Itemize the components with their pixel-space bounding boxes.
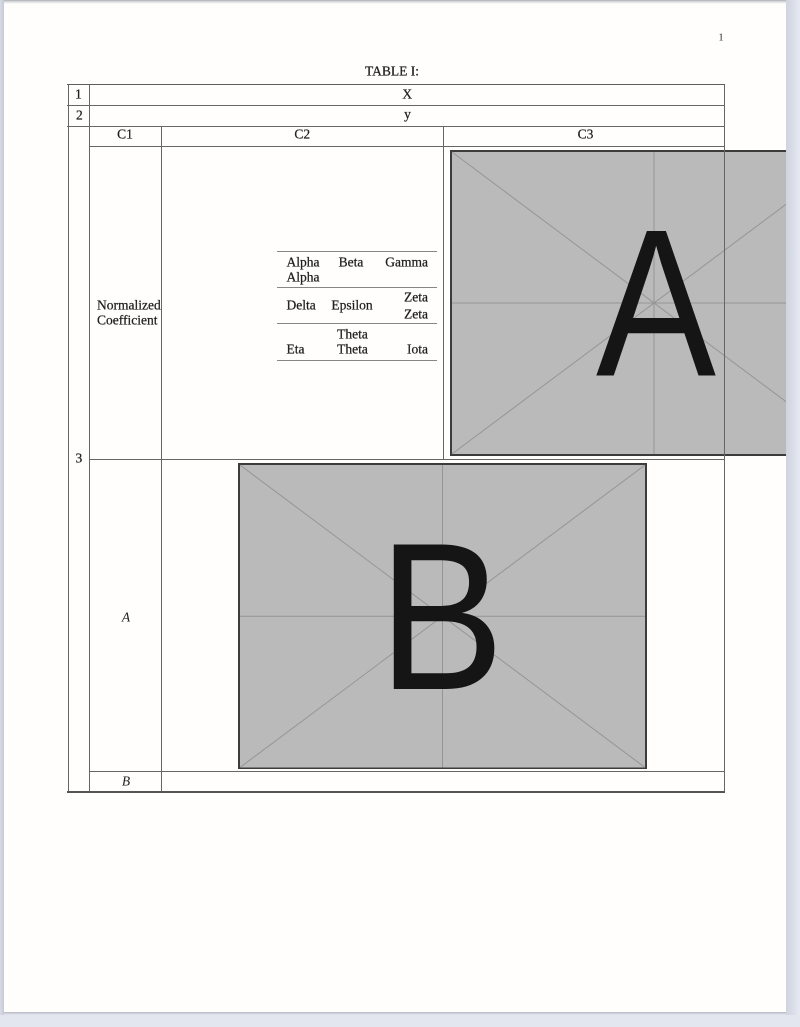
svg-text:A: A — [596, 186, 716, 421]
svg-text:B: B — [378, 499, 504, 734]
